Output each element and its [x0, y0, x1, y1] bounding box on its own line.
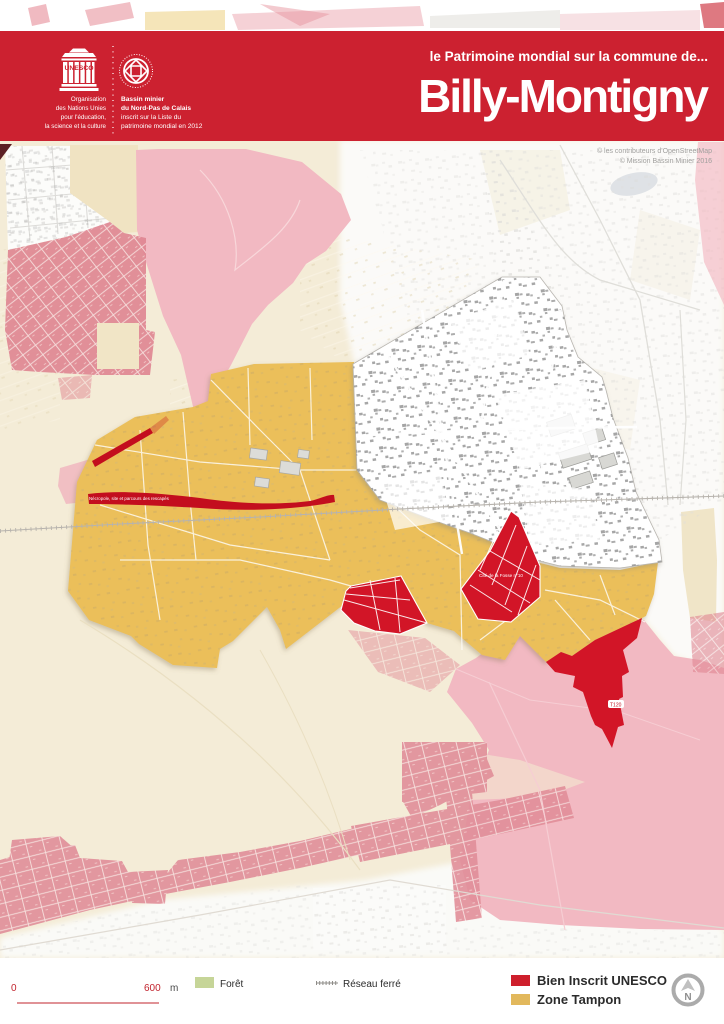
svg-text:© les contributeurs d'OpenStre: © les contributeurs d'OpenStreetMap: [597, 147, 712, 155]
svg-text:pour l'éducation,: pour l'éducation,: [61, 114, 106, 121]
svg-text:des Nations Unies: des Nations Unies: [56, 105, 106, 112]
svg-text:Bassin minier: Bassin minier: [121, 96, 165, 103]
svg-text:UNESCO: UNESCO: [64, 65, 93, 72]
svg-text:le Patrimoine mondial sur la c: le Patrimoine mondial sur la commune de.…: [430, 49, 708, 64]
svg-text:Cité de la Fosse n°10: Cité de la Fosse n°10: [479, 573, 523, 578]
svg-text:la science et la culture: la science et la culture: [45, 123, 107, 130]
svg-text:T120: T120: [610, 703, 622, 709]
svg-text:patrimoine mondial en 2012: patrimoine mondial en 2012: [121, 123, 203, 130]
svg-text:600: 600: [144, 983, 161, 994]
svg-text:Réseau ferré: Réseau ferré: [343, 979, 401, 990]
svg-text:du Nord-Pas de Calais: du Nord-Pas de Calais: [121, 105, 191, 112]
svg-text:Billy-Montigny: Billy-Montigny: [418, 70, 709, 122]
svg-text:Organisation: Organisation: [71, 96, 107, 103]
svg-text:Zone Tampon: Zone Tampon: [537, 992, 621, 1007]
svg-text:© Mission Bassin Minier 2016: © Mission Bassin Minier 2016: [620, 157, 712, 165]
svg-text:Nécropole, site et parcours de: Nécropole, site et parcours des rescapés: [89, 496, 170, 501]
svg-text:0: 0: [11, 983, 17, 994]
svg-text:inscrit sur la Liste du: inscrit sur la Liste du: [121, 114, 181, 121]
svg-text:Forêt: Forêt: [220, 979, 244, 990]
svg-text:Bien Inscrit UNESCO: Bien Inscrit UNESCO: [537, 973, 667, 988]
svg-text:N: N: [684, 992, 691, 1003]
svg-text:m: m: [170, 983, 178, 994]
